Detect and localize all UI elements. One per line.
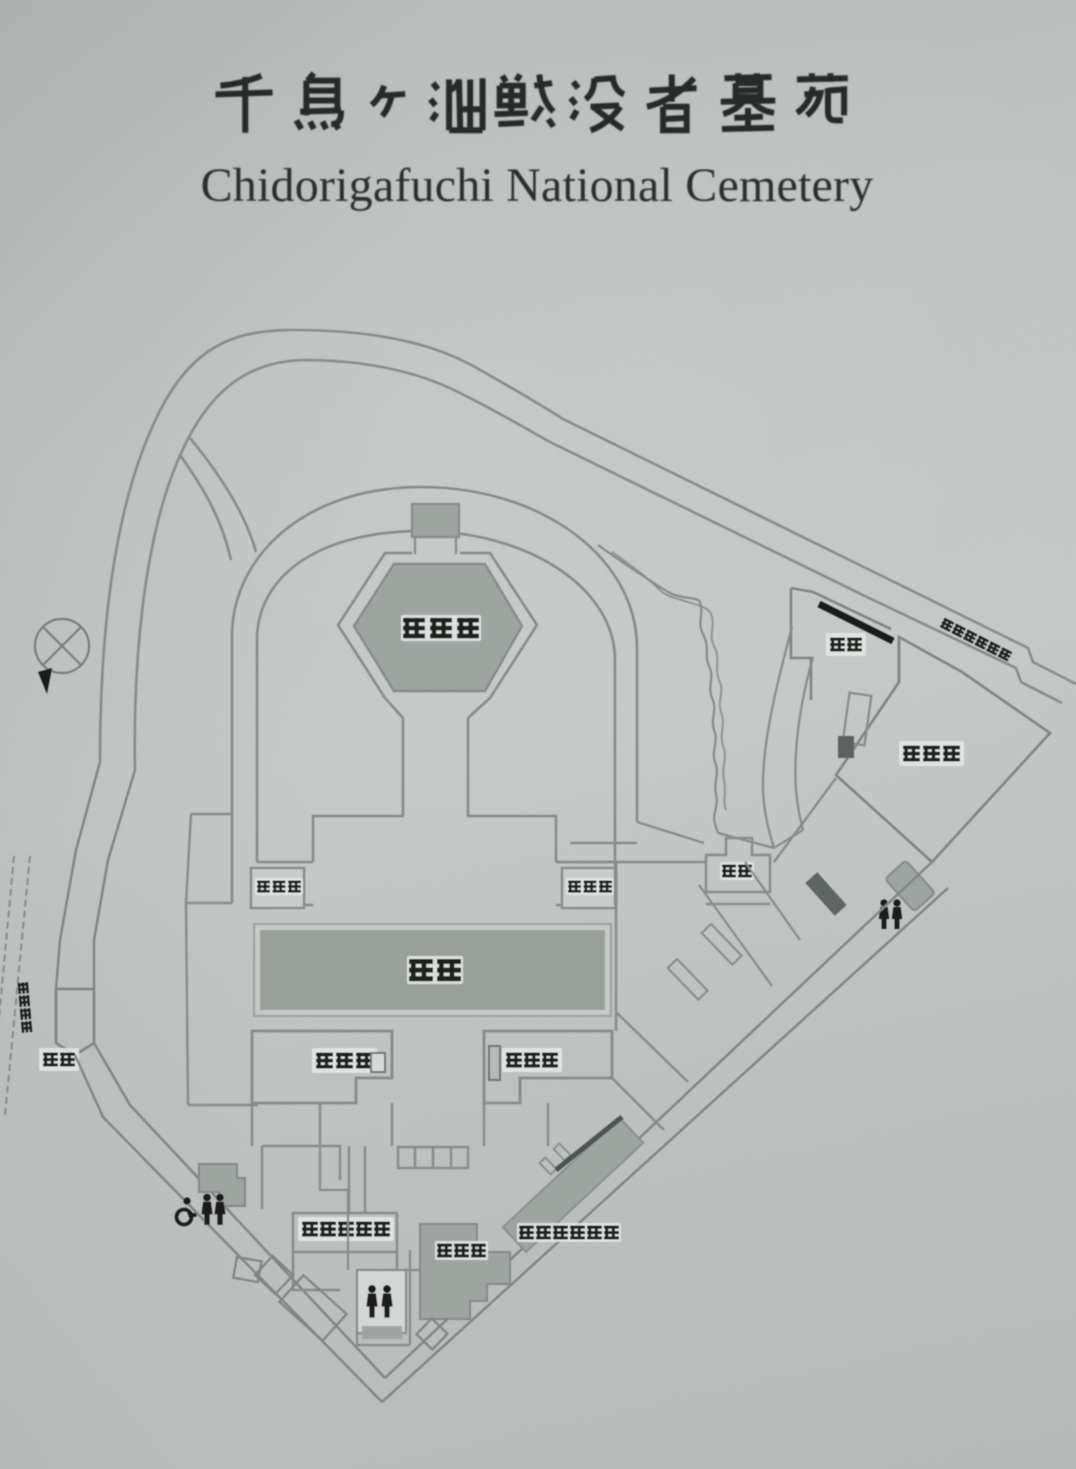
svg-text:Chidorigafuchi National Cemete: Chidorigafuchi National Cemetery (201, 159, 874, 212)
